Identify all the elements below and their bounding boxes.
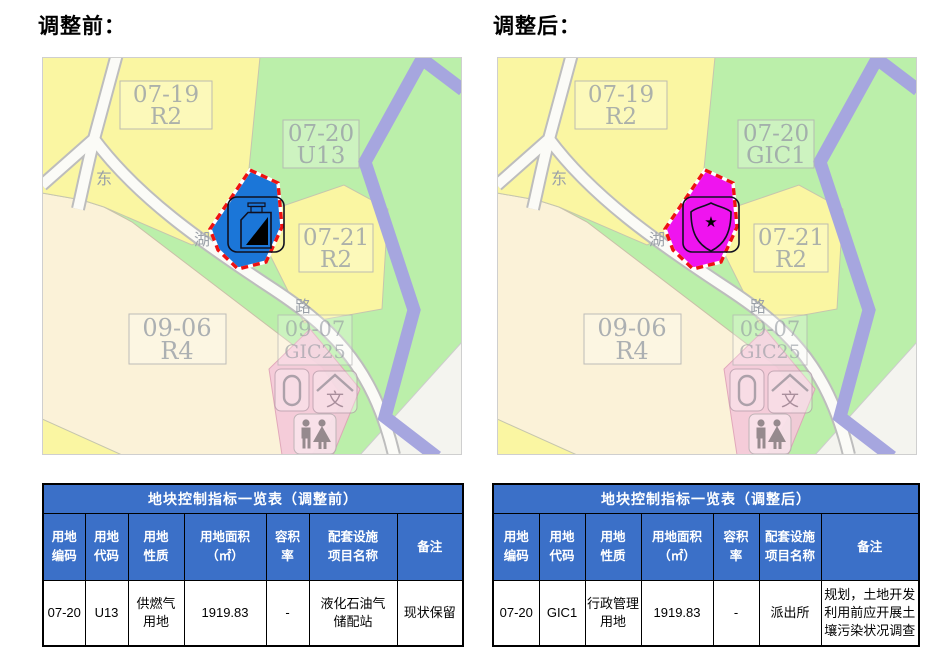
road-char-lu: 路 <box>295 297 311 316</box>
col-header-land-code: 用地 编码 <box>43 514 85 581</box>
cell-land-code: 07-20 <box>43 581 85 647</box>
cell-land-code: 07-20 <box>493 581 539 647</box>
parcel-use-09-07: GIC25 <box>284 341 345 363</box>
parcel-use-09-06: R4 <box>615 337 648 365</box>
table-title-before: 地块控制指标一览表（调整前） <box>43 484 463 514</box>
parcel-use-09-06: R4 <box>160 337 193 365</box>
culture-char: 文 <box>326 390 344 410</box>
col-header-land-use: 用地 性质 <box>585 514 641 581</box>
table-row: 07-20 GIC1 行政管理 用地 1919.83 - 派出所 规划，土地开发… <box>493 581 919 647</box>
toilet-icon <box>294 414 336 454</box>
cell-land-use: 行政管理 用地 <box>585 581 641 647</box>
parcel-use-07-19: R2 <box>150 104 182 130</box>
cell-far: - <box>713 581 759 647</box>
col-header-remark: 备注 <box>397 514 463 581</box>
parcel-code-09-07: 09-07 <box>285 317 346 341</box>
parcel-use-07-21: R2 <box>320 247 352 273</box>
after-heading: 调整后： <box>493 10 581 40</box>
map-after: ★ 文 07-19 R2 07-20 GIC1 07-21 R2 09-06 R… <box>497 57 917 455</box>
col-header-land-class: 用地 代码 <box>539 514 585 581</box>
parcel-code-09-07: 09-07 <box>740 317 801 341</box>
table-before: 地块控制指标一览表（调整前） 用地 编码 用地 代码 用地 性质 用地面积 （㎡… <box>42 483 462 647</box>
parcel-use-07-21: R2 <box>775 247 807 273</box>
road-char-lu: 路 <box>750 297 766 316</box>
cell-facility: 液化石油气 储配站 <box>309 581 397 647</box>
table-title-after: 地块控制指标一览表（调整后） <box>493 484 919 514</box>
before-heading: 调整前： <box>38 10 126 40</box>
col-header-facility: 配套设施 项目名称 <box>309 514 397 581</box>
col-header-facility: 配套设施 项目名称 <box>759 514 821 581</box>
zoning-map-before: 文 07-19 R2 07-20 U13 07-21 R2 09-06 R4 0… <box>42 57 462 455</box>
zoning-map-after: ★ 文 07-19 R2 07-20 GIC1 07-21 R2 09-06 R… <box>497 57 917 455</box>
indicator-table-before: 地块控制指标一览表（调整前） 用地 编码 用地 代码 用地 性质 用地面积 （㎡… <box>42 483 464 647</box>
col-header-land-use: 用地 性质 <box>128 514 184 581</box>
col-header-land-area: 用地面积 （㎡） <box>641 514 713 581</box>
road-char-dong: 东 <box>551 169 567 188</box>
cell-remark: 现状保留 <box>397 581 463 647</box>
table-after: 地块控制指标一览表（调整后） 用地 编码 用地 代码 用地 性质 用地面积 （㎡… <box>492 483 918 647</box>
col-header-land-area: 用地面积 （㎡） <box>184 514 266 581</box>
parcel-use-07-19: R2 <box>605 104 637 130</box>
cell-land-class: GIC1 <box>539 581 585 647</box>
parcel-use-07-20: U13 <box>297 143 346 169</box>
map-before: 文 07-19 R2 07-20 U13 07-21 R2 09-06 R4 0… <box>42 57 462 455</box>
cell-land-area: 1919.83 <box>184 581 266 647</box>
road-char-dong: 东 <box>96 169 112 188</box>
table-row: 07-20 U13 供燃气 用地 1919.83 - 液化石油气 储配站 现状保… <box>43 581 463 647</box>
parcel-use-09-07: GIC25 <box>739 341 800 363</box>
toilet-icon <box>749 414 791 454</box>
col-header-far: 容积 率 <box>713 514 759 581</box>
col-header-remark: 备注 <box>821 514 919 581</box>
cell-land-class: U13 <box>85 581 128 647</box>
cell-land-area: 1919.83 <box>641 581 713 647</box>
cell-far: - <box>266 581 309 647</box>
col-header-land-code: 用地 编码 <box>493 514 539 581</box>
road-char-hu: 湖 <box>194 230 210 249</box>
culture-char: 文 <box>781 390 799 410</box>
cell-remark: 规划，土地开发 利用前应开展土 壤污染状况调查 <box>821 581 919 647</box>
star-glyph: ★ <box>704 214 717 231</box>
cell-facility: 派出所 <box>759 581 821 647</box>
col-header-far: 容积 率 <box>266 514 309 581</box>
indicator-table-after: 地块控制指标一览表（调整后） 用地 编码 用地 代码 用地 性质 用地面积 （㎡… <box>492 483 920 647</box>
road-char-hu: 湖 <box>649 230 665 249</box>
cell-land-use: 供燃气 用地 <box>128 581 184 647</box>
parcel-use-07-20: GIC1 <box>746 143 806 169</box>
col-header-land-class: 用地 代码 <box>85 514 128 581</box>
